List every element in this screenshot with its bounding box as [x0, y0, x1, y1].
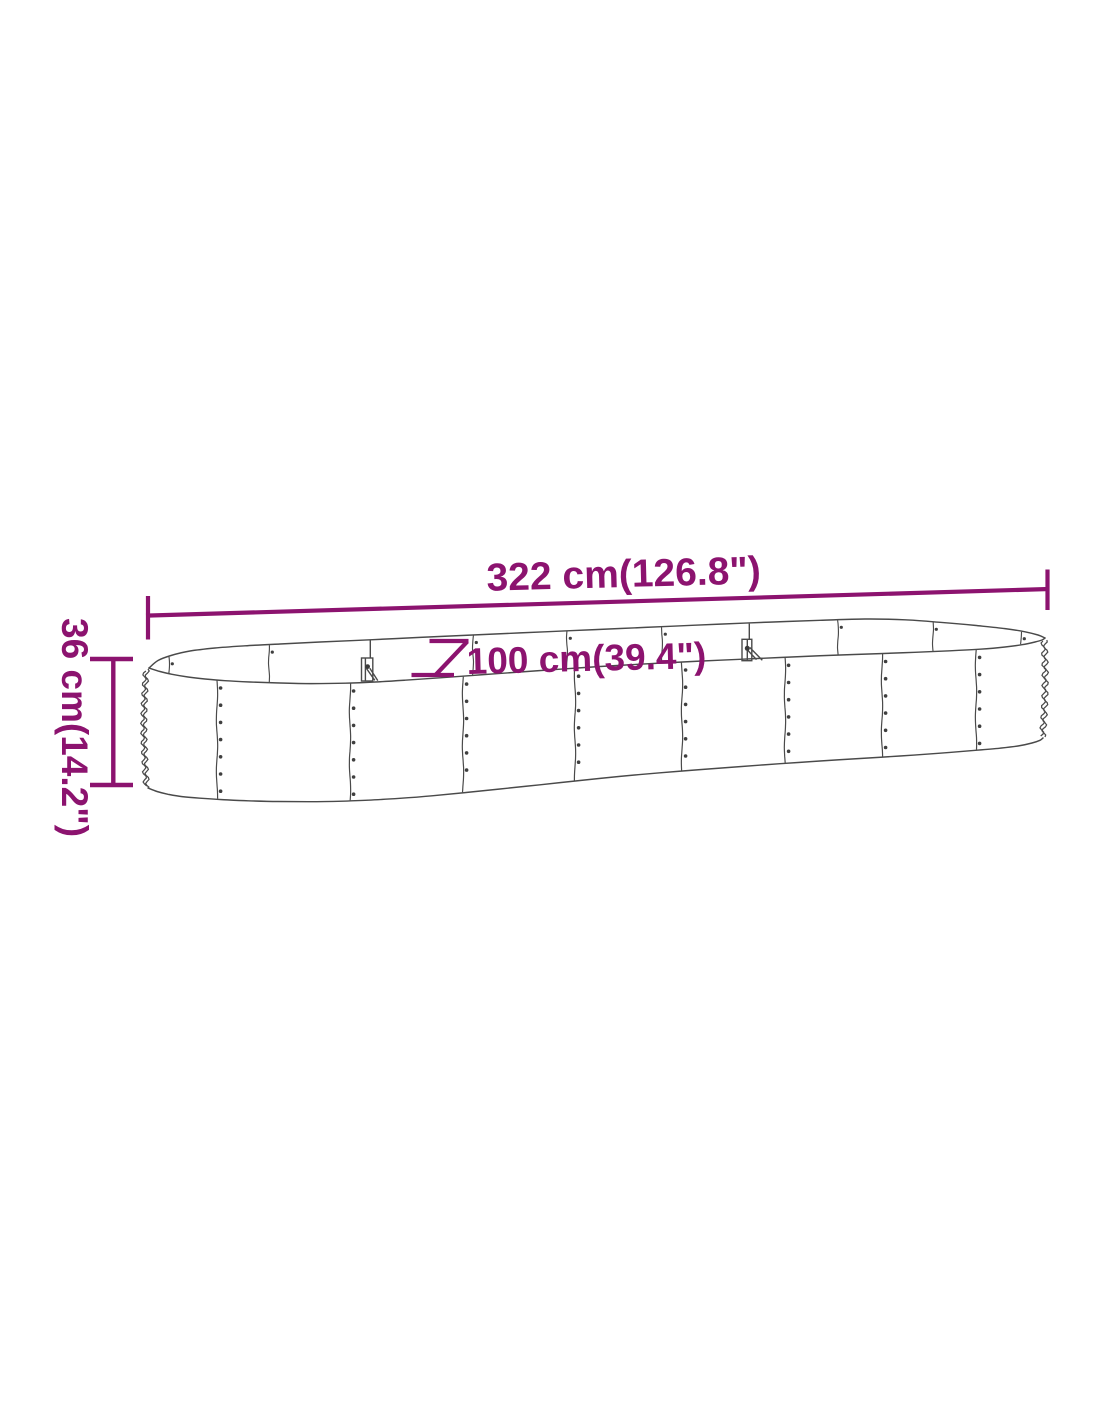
svg-text:36 cm(14.2"): 36 cm(14.2")	[54, 618, 95, 837]
svg-text:100 cm(39.4"): 100 cm(39.4")	[466, 635, 707, 682]
svg-text:322 cm(126.8"): 322 cm(126.8")	[486, 549, 761, 599]
